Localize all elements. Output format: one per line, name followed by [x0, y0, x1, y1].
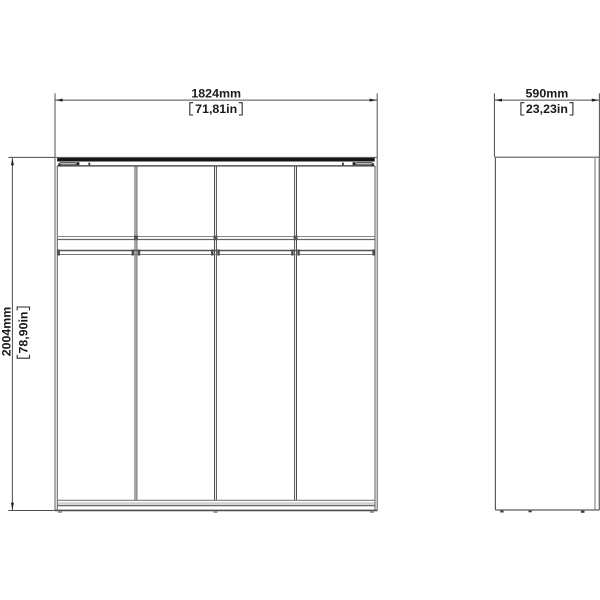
svg-text:78,90in: 78,90in [17, 311, 31, 353]
svg-text:2004mm: 2004mm [0, 307, 14, 357]
svg-text:71,81in: 71,81in [195, 102, 237, 116]
svg-text:23,23in: 23,23in [526, 102, 568, 116]
svg-text:1824mm: 1824mm [191, 87, 241, 101]
svg-text:590mm: 590mm [526, 87, 569, 101]
